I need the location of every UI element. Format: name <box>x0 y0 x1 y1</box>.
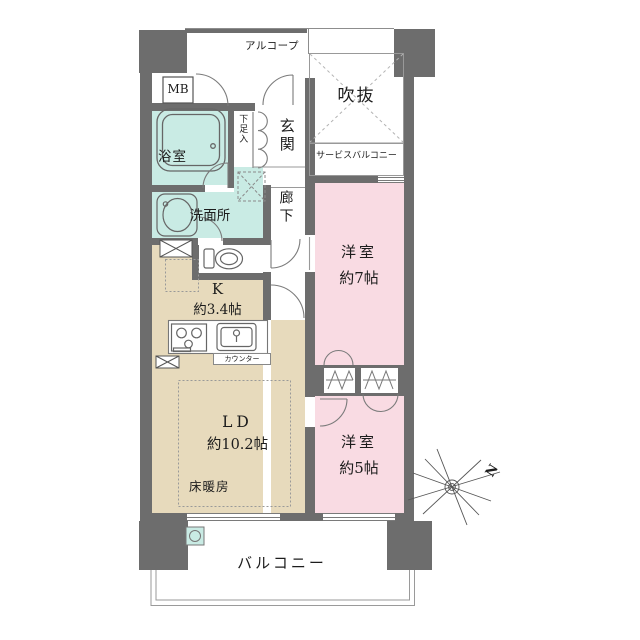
room-label-void: 吹抜 <box>309 86 404 107</box>
wall <box>152 238 198 245</box>
wall <box>140 103 255 111</box>
window-western7 <box>378 177 404 183</box>
room-label-kitchen: K 約3.4帖 <box>170 279 265 320</box>
wall <box>185 28 307 33</box>
wall <box>355 365 361 396</box>
door-arc-living <box>271 285 304 318</box>
wall <box>315 365 324 396</box>
door-arc-entrance <box>263 75 293 105</box>
room-size: 約3.4帖 <box>170 301 265 321</box>
room-label-balcony: バルコニー <box>202 554 362 573</box>
compass-north-label: N <box>483 462 503 481</box>
wall <box>228 108 234 188</box>
room-label-entrance: 玄関 <box>277 118 296 154</box>
wall <box>404 76 414 522</box>
pillar <box>394 29 435 77</box>
floor-plan: アルコープ MB 吹抜 サービスバルコニー 浴室 下足入 玄関 洗面所 廊下 洋… <box>0 0 640 640</box>
room-toilet <box>199 245 263 273</box>
room-size: 約5帖 <box>313 456 405 482</box>
room-washroom-upper <box>234 167 263 192</box>
door-arc-alcove <box>196 74 228 106</box>
room-name: K <box>170 279 265 301</box>
room-label-service-balcony: サービスバルコニー <box>309 151 404 162</box>
room-name: 洋室 <box>313 240 405 266</box>
room-name: LD <box>180 410 295 434</box>
label-floor-heating: 床暖房 <box>189 479 230 495</box>
wall <box>152 513 187 521</box>
closet-2 <box>361 368 398 393</box>
wall <box>152 185 205 192</box>
closet-1 <box>324 368 355 393</box>
label-counter: カウンター <box>213 355 271 364</box>
room-label-washroom: 洗面所 <box>160 208 260 225</box>
wall <box>263 185 271 240</box>
room-label-bathroom: 浴室 <box>158 149 187 166</box>
room-bathroom <box>152 105 228 185</box>
room-label-meter-box: MB <box>163 82 193 97</box>
room-label-shoe-cabinet: 下足入 <box>236 114 247 144</box>
wall <box>280 513 323 521</box>
wall <box>140 72 152 522</box>
pillar <box>139 30 187 73</box>
pillar <box>387 521 432 570</box>
room-label-western5: 洋室 約5帖 <box>313 430 405 481</box>
wall <box>313 176 378 183</box>
compass-icon <box>408 449 500 525</box>
wall <box>398 365 406 396</box>
room-label-western7: 洋室 約7帖 <box>313 240 405 291</box>
window-living <box>187 513 280 521</box>
room-label-alcove: アルコープ <box>212 40 332 53</box>
slop-sink-icon <box>186 527 204 545</box>
room-label-corridor: 廊下 <box>276 190 294 226</box>
room-name: 洋室 <box>313 430 405 456</box>
room-size: 約10.2帖 <box>180 434 295 456</box>
wall <box>395 513 414 521</box>
room-size: 約7帖 <box>313 266 405 292</box>
door-arc-toilet <box>271 239 300 268</box>
folding-door-shoebox <box>253 112 267 168</box>
balcony-railing <box>151 570 415 606</box>
pillar <box>139 521 188 570</box>
window-western5 <box>323 513 395 521</box>
room-label-living-dining: LD 約10.2帖 <box>180 410 295 456</box>
